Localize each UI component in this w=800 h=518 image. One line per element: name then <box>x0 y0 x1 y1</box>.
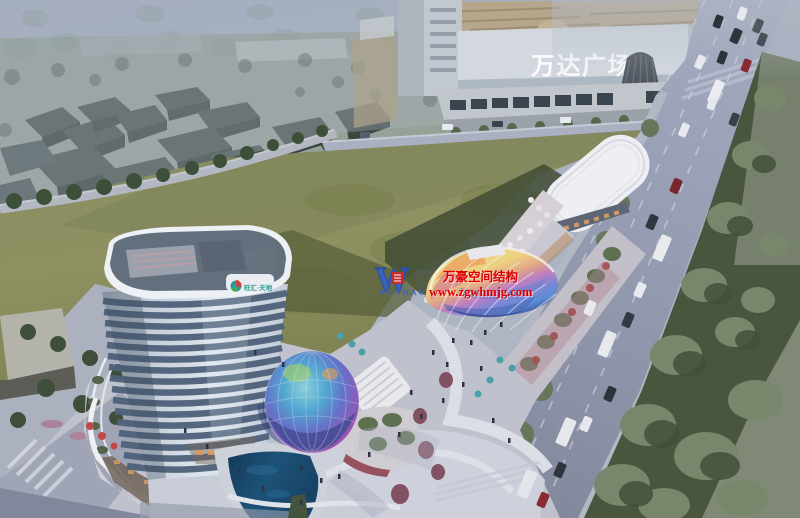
svg-text:万豪空间结构: 万豪空间结构 <box>442 269 518 284</box>
svg-text:WANHAO: WANHAO <box>378 288 427 297</box>
svg-text:旺汇·天地: 旺汇·天地 <box>244 283 273 292</box>
svg-text:www.zgwhmjg.com: www.zgwhmjg.com <box>429 285 533 299</box>
